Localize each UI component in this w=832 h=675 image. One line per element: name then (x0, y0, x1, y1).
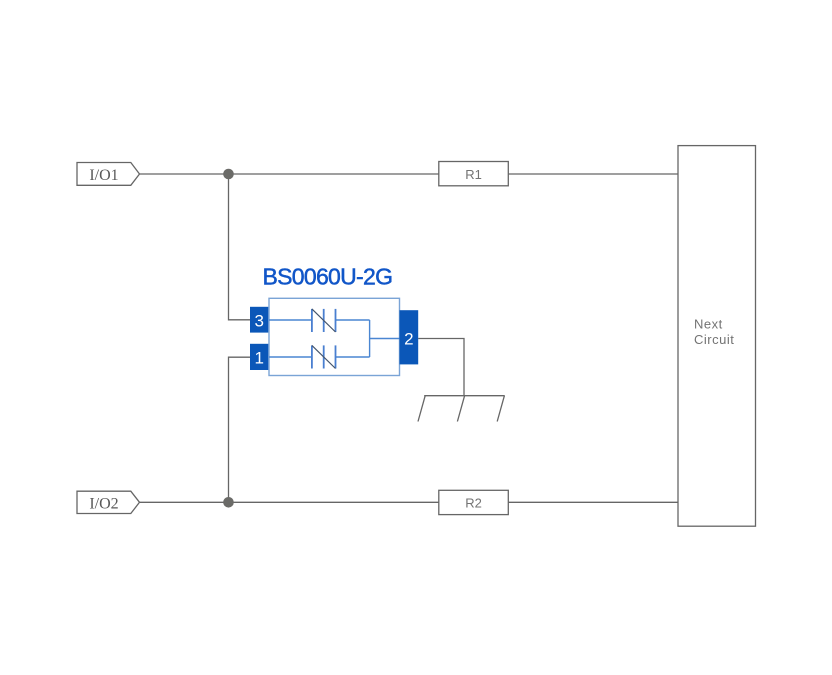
svg-text:Circuit: Circuit (694, 332, 734, 347)
svg-text:R1: R1 (465, 167, 482, 182)
svg-text:Next: Next (694, 317, 723, 332)
svg-text:R2: R2 (465, 496, 482, 511)
svg-text:1: 1 (254, 348, 263, 367)
svg-text:3: 3 (254, 311, 263, 330)
svg-text:I/O2: I/O2 (89, 495, 118, 512)
svg-text:2: 2 (404, 329, 413, 348)
svg-text:I/O1: I/O1 (89, 167, 118, 184)
svg-text:BS0060U-2G: BS0060U-2G (263, 264, 393, 290)
